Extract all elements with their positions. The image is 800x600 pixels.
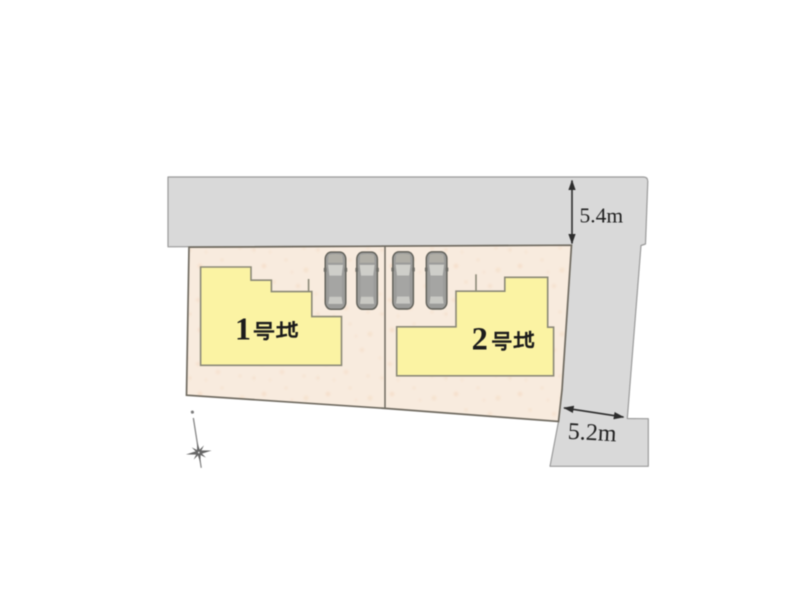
svg-text:1: 1 <box>235 311 251 347</box>
svg-text:5.4m: 5.4m <box>580 204 624 228</box>
svg-text:5.2m: 5.2m <box>567 419 617 448</box>
svg-text:2: 2 <box>472 322 488 358</box>
